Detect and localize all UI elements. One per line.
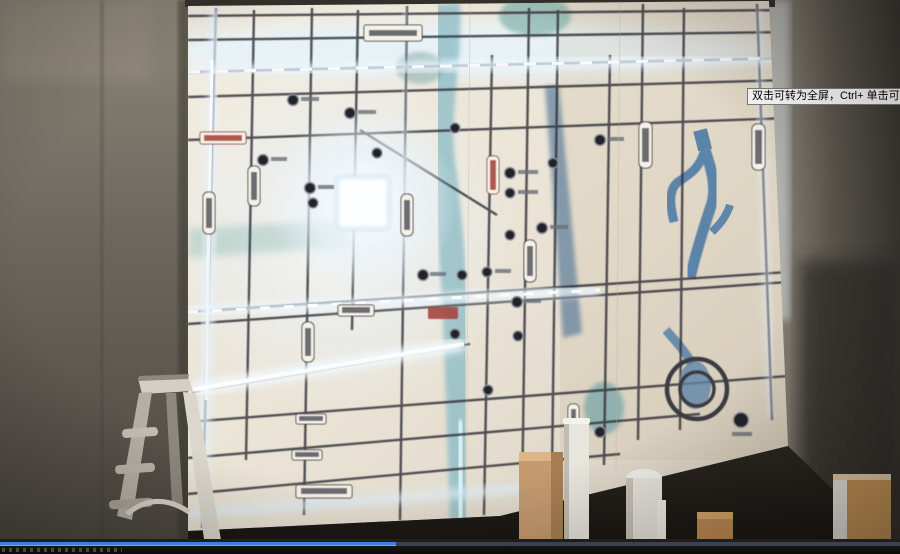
wall-left [0, 0, 192, 554]
video-progress-fill[interactable] [0, 542, 396, 546]
showroom-photo [0, 0, 900, 554]
illuminated-map-wall [160, 0, 790, 531]
fullscreen-hint-tooltip: 双击可转为全屏，Ctrl+ 单击可转为全屏 [747, 88, 900, 105]
video-player-bar [0, 539, 900, 554]
player-controls-blur [2, 548, 122, 552]
video-frame: 双击可转为全屏，Ctrl+ 单击可转为全屏 [0, 0, 900, 554]
video-progress-track[interactable] [0, 542, 900, 546]
project-location-glow [268, 108, 458, 298]
